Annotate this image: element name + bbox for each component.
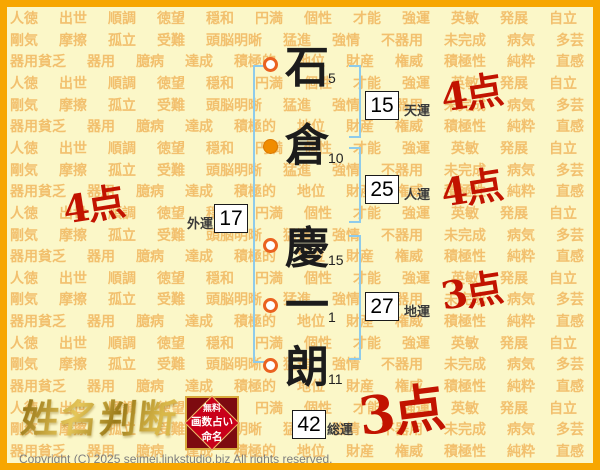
watermark-word: 順調 — [108, 8, 136, 29]
watermark-word: 直感 — [556, 441, 584, 462]
watermark-word: 病気 — [507, 95, 535, 116]
chiun-value-box: 27 — [365, 292, 399, 321]
watermark-word: 出世 — [59, 8, 87, 29]
watermark-word: 穏和 — [206, 138, 234, 159]
watermark-word: 強情 — [332, 289, 360, 310]
name-character-4: 一 — [284, 283, 330, 329]
watermark-word: 発展 — [500, 398, 528, 419]
watermark-word: 多芸 — [556, 95, 584, 116]
watermark-word: 臆病 — [136, 246, 164, 267]
watermark-word: 達成 — [185, 311, 213, 332]
watermark-word: 出世 — [59, 333, 87, 354]
stamp-line-2: 画数占い — [187, 415, 237, 430]
seimei-handan-result-page: 人徳出世順調徳望穏和円満個性才能強運英敏発展自立剛気摩擦孤立受難頭脳明晰猛進強情… — [0, 0, 600, 470]
watermark-word: 達成 — [185, 181, 213, 202]
watermark-word: 不器用 — [381, 225, 423, 246]
watermark-word: 人徳 — [10, 268, 38, 289]
watermark-word: 剛気 — [10, 289, 38, 310]
watermark-word: 英敏 — [451, 333, 479, 354]
watermark-word: 徳望 — [157, 8, 185, 29]
watermark-word: 器用貧乏 — [10, 181, 66, 202]
watermark-word: 権威 — [395, 51, 423, 72]
chiun-bracket-bottom-tick — [349, 358, 361, 360]
stroke-count-4: 1 — [328, 309, 350, 325]
watermark-word: 病気 — [507, 30, 535, 51]
watermark-word: 病気 — [507, 225, 535, 246]
gaiun-value-box: 17 — [214, 204, 248, 233]
gaiun-score: 4点 — [60, 183, 126, 230]
watermark-word: 直感 — [556, 181, 584, 202]
watermark-word: 器用 — [87, 311, 115, 332]
watermark-word: 徳望 — [157, 73, 185, 94]
watermark-word: 人徳 — [10, 73, 38, 94]
watermark-word: 多芸 — [556, 289, 584, 310]
watermark-word: 徳望 — [157, 333, 185, 354]
watermark-word: 達成 — [185, 376, 213, 397]
character-marker — [263, 298, 278, 313]
watermark-word: 自立 — [549, 138, 577, 159]
stroke-count-1: 5 — [328, 70, 350, 86]
watermark-word: 達成 — [185, 51, 213, 72]
watermark-word: 強運 — [402, 203, 430, 224]
watermark-word: 強情 — [332, 30, 360, 51]
watermark-word: 孤立 — [108, 289, 136, 310]
watermark-word: 出世 — [59, 138, 87, 159]
watermark-word: 臆病 — [136, 311, 164, 332]
watermark-word: 発展 — [500, 8, 528, 29]
jinun-value-box: 25 — [365, 175, 399, 204]
watermark-word: 順調 — [108, 138, 136, 159]
watermark-word: 人徳 — [10, 138, 38, 159]
stamp-line-1: 無料 — [187, 402, 237, 415]
watermark-word: 人徳 — [10, 8, 38, 29]
watermark-word: 強運 — [402, 268, 430, 289]
watermark-word: 未完成 — [444, 419, 486, 440]
watermark-word: 未完成 — [444, 354, 486, 375]
watermark-word: 純粋 — [507, 51, 535, 72]
watermark-word: 徳望 — [157, 138, 185, 159]
copyright-text: Copyright (C) 2025 seimei.linkstudio.biz… — [19, 452, 332, 466]
watermark-word: 円満 — [255, 333, 283, 354]
watermark-word: 多芸 — [556, 419, 584, 440]
watermark-word: 穏和 — [206, 333, 234, 354]
watermark-word: 孤立 — [108, 30, 136, 51]
watermark-word: 出世 — [59, 73, 87, 94]
watermark-word: 多芸 — [556, 30, 584, 51]
watermark-word: 猛進 — [283, 95, 311, 116]
watermark-word: 頭脳明晰 — [206, 30, 262, 51]
chiun-label: 地運 — [404, 301, 430, 320]
watermark-word: 剛気 — [10, 95, 38, 116]
stroke-count-3: 15 — [328, 252, 350, 268]
watermark-word: 円満 — [255, 8, 283, 29]
watermark-word: 直感 — [556, 376, 584, 397]
watermark-word: 英敏 — [451, 398, 479, 419]
watermark-word: 徳望 — [157, 268, 185, 289]
watermark-word: 孤立 — [108, 95, 136, 116]
chiun-score: 3点 — [438, 269, 504, 316]
tenun-label: 天運 — [404, 100, 430, 119]
watermark-word: 剛気 — [10, 225, 38, 246]
tenun-score: 4点 — [438, 71, 504, 118]
name-character-3: 慶 — [284, 226, 330, 272]
tenun-bracket-line — [359, 65, 361, 138]
souun-label: 総運 — [327, 419, 353, 438]
jinun-score: 4点 — [438, 166, 504, 213]
watermark-word: 円満 — [255, 73, 283, 94]
name-character-2: 倉 — [284, 123, 330, 169]
watermark-word: 純粋 — [507, 116, 535, 137]
watermark-word: 円満 — [255, 398, 283, 419]
watermark-word: 英敏 — [451, 138, 479, 159]
watermark-word: 孤立 — [108, 225, 136, 246]
watermark-word: 病気 — [507, 289, 535, 310]
watermark-word: 積極的 — [234, 181, 276, 202]
character-marker-selected — [263, 139, 278, 154]
watermark-word: 強運 — [402, 333, 430, 354]
watermark-word: 積極的 — [234, 311, 276, 332]
watermark-word: 積極性 — [444, 441, 486, 462]
stamp-line-3: 命名 — [187, 430, 237, 444]
watermark-word: 才能 — [353, 268, 381, 289]
name-character-5: 朗 — [284, 345, 330, 391]
background-watermark-row: 人徳出世順調徳望穏和円満個性才能強運英敏発展自立 — [10, 8, 577, 29]
watermark-word: 達成 — [185, 246, 213, 267]
watermark-word: 個性 — [304, 8, 332, 29]
jinun-bracket-line — [359, 147, 361, 223]
watermark-word: 積極性 — [444, 246, 486, 267]
watermark-word: 直感 — [556, 116, 584, 137]
watermark-word: 器用 — [87, 376, 115, 397]
watermark-word: 器用貧乏 — [10, 376, 66, 397]
watermark-word: 才能 — [353, 8, 381, 29]
watermark-word: 積極性 — [444, 376, 486, 397]
watermark-word: 病気 — [507, 419, 535, 440]
chiun-bracket-top-tick — [349, 235, 361, 237]
seimei-handan-logo[interactable]: 姓名判断 — [18, 395, 179, 443]
watermark-word: 順調 — [108, 333, 136, 354]
watermark-word: 権威 — [395, 441, 423, 462]
watermark-word: 達成 — [185, 116, 213, 137]
watermark-word: 権威 — [395, 116, 423, 137]
watermark-word: 器用貧乏 — [10, 311, 66, 332]
watermark-word: 未完成 — [444, 30, 486, 51]
watermark-word: 自立 — [549, 203, 577, 224]
character-marker — [263, 358, 278, 373]
watermark-word: 病気 — [507, 354, 535, 375]
name-character-1: 石 — [284, 45, 330, 91]
watermark-word: 剛気 — [10, 354, 38, 375]
watermark-word: 摩擦 — [59, 30, 87, 51]
stroke-count-5: 11 — [328, 371, 350, 387]
watermark-word: 剛気 — [10, 160, 38, 181]
watermark-word: 器用貧乏 — [10, 246, 66, 267]
watermark-word: 不器用 — [381, 354, 423, 375]
watermark-word: 器用貧乏 — [10, 116, 66, 137]
watermark-word: 発展 — [500, 268, 528, 289]
watermark-word: 純粋 — [507, 311, 535, 332]
watermark-word: 順調 — [108, 268, 136, 289]
watermark-word: 臆病 — [136, 51, 164, 72]
watermark-word: 円満 — [255, 203, 283, 224]
watermark-word: 発展 — [500, 333, 528, 354]
watermark-word: 病気 — [507, 160, 535, 181]
free-naming-stamp[interactable]: 無料 画数占い 命名 — [185, 396, 239, 450]
watermark-word: 徳望 — [157, 203, 185, 224]
watermark-word: 臆病 — [136, 116, 164, 137]
watermark-word: 自立 — [549, 398, 577, 419]
watermark-word: 受難 — [157, 95, 185, 116]
souun-value-box: 42 — [292, 410, 326, 439]
character-marker — [263, 57, 278, 72]
watermark-word: 直感 — [556, 246, 584, 267]
stamp-text: 無料 画数占い 命名 — [187, 402, 237, 444]
jinun-label: 人運 — [404, 184, 430, 203]
watermark-word: 円満 — [255, 268, 283, 289]
watermark-word: 直感 — [556, 311, 584, 332]
watermark-word: 発展 — [500, 138, 528, 159]
watermark-word: 受難 — [157, 160, 185, 181]
left-bracket-line — [253, 65, 255, 363]
watermark-word: 自立 — [549, 8, 577, 29]
watermark-word: 受難 — [157, 354, 185, 375]
watermark-word: 出世 — [59, 268, 87, 289]
watermark-word: 穏和 — [206, 268, 234, 289]
watermark-word: 直感 — [556, 51, 584, 72]
watermark-word: 臆病 — [136, 376, 164, 397]
tenun-value-box: 15 — [365, 91, 399, 120]
watermark-word: 強運 — [402, 73, 430, 94]
watermark-word: 摩擦 — [59, 160, 87, 181]
tenun-bracket-bottom-tick — [349, 136, 361, 138]
watermark-word: 強運 — [402, 138, 430, 159]
watermark-word: 権威 — [395, 246, 423, 267]
watermark-word: 剛気 — [10, 30, 38, 51]
watermark-word: 自立 — [549, 333, 577, 354]
watermark-word: 器用 — [87, 51, 115, 72]
watermark-word: 器用 — [87, 116, 115, 137]
watermark-word: 孤立 — [108, 160, 136, 181]
watermark-word: 器用 — [87, 246, 115, 267]
watermark-word: 英敏 — [451, 8, 479, 29]
watermark-word: 発展 — [500, 73, 528, 94]
character-marker — [263, 238, 278, 253]
stroke-count-2: 10 — [328, 150, 350, 166]
watermark-word: 個性 — [304, 203, 332, 224]
watermark-word: 自立 — [549, 73, 577, 94]
watermark-word: 穏和 — [206, 73, 234, 94]
watermark-word: 孤立 — [108, 354, 136, 375]
watermark-word: 不器用 — [381, 30, 423, 51]
chiun-bracket-line — [359, 235, 361, 360]
watermark-word: 人徳 — [10, 333, 38, 354]
watermark-word: 強情 — [332, 95, 360, 116]
watermark-word: 純粋 — [507, 181, 535, 202]
watermark-word: 純粋 — [507, 376, 535, 397]
tenun-bracket-top-tick — [349, 65, 361, 67]
watermark-word: 受難 — [157, 30, 185, 51]
watermark-word: 地位 — [297, 181, 325, 202]
watermark-word: 強運 — [402, 8, 430, 29]
souun-score: 3点 — [356, 382, 446, 444]
watermark-word: 順調 — [108, 73, 136, 94]
watermark-word: 自立 — [549, 268, 577, 289]
watermark-word: 摩擦 — [59, 95, 87, 116]
watermark-word: 人徳 — [10, 203, 38, 224]
jinun-bracket-top-tick — [349, 147, 361, 149]
watermark-word: 純粋 — [507, 246, 535, 267]
jinun-bracket-bottom-tick — [349, 221, 361, 223]
watermark-word: 摩擦 — [59, 354, 87, 375]
gaiun-label: 外運 — [187, 213, 213, 232]
watermark-word: 積極的 — [234, 376, 276, 397]
watermark-word: 積極的 — [234, 116, 276, 137]
watermark-word: 摩擦 — [59, 289, 87, 310]
watermark-word: 多芸 — [556, 160, 584, 181]
watermark-word: 受難 — [157, 289, 185, 310]
watermark-word: 才能 — [353, 333, 381, 354]
watermark-word: 多芸 — [556, 354, 584, 375]
watermark-word: 多芸 — [556, 225, 584, 246]
watermark-word: 受難 — [157, 225, 185, 246]
watermark-word: 器用貧乏 — [10, 51, 66, 72]
watermark-word: 穏和 — [206, 8, 234, 29]
watermark-word: 未完成 — [444, 225, 486, 246]
watermark-word: 臆病 — [136, 181, 164, 202]
watermark-word: 純粋 — [507, 441, 535, 462]
